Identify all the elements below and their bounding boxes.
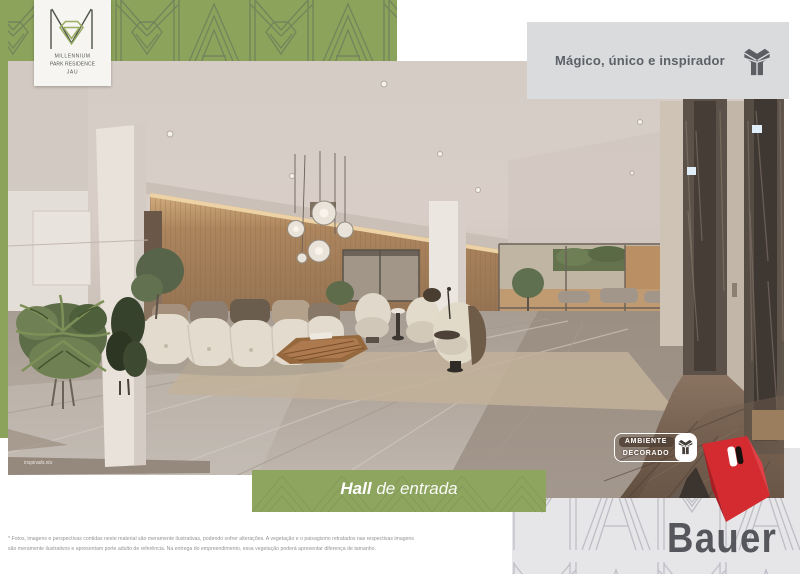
svg-text:PARK RESIDENCE: PARK RESIDENCE	[50, 62, 96, 68]
svg-text:inspirado.stu: inspirado.stu	[24, 460, 53, 466]
svg-text:MILLENNIUM: MILLENNIUM	[55, 54, 91, 60]
svg-text:JAU: JAU	[67, 70, 79, 76]
